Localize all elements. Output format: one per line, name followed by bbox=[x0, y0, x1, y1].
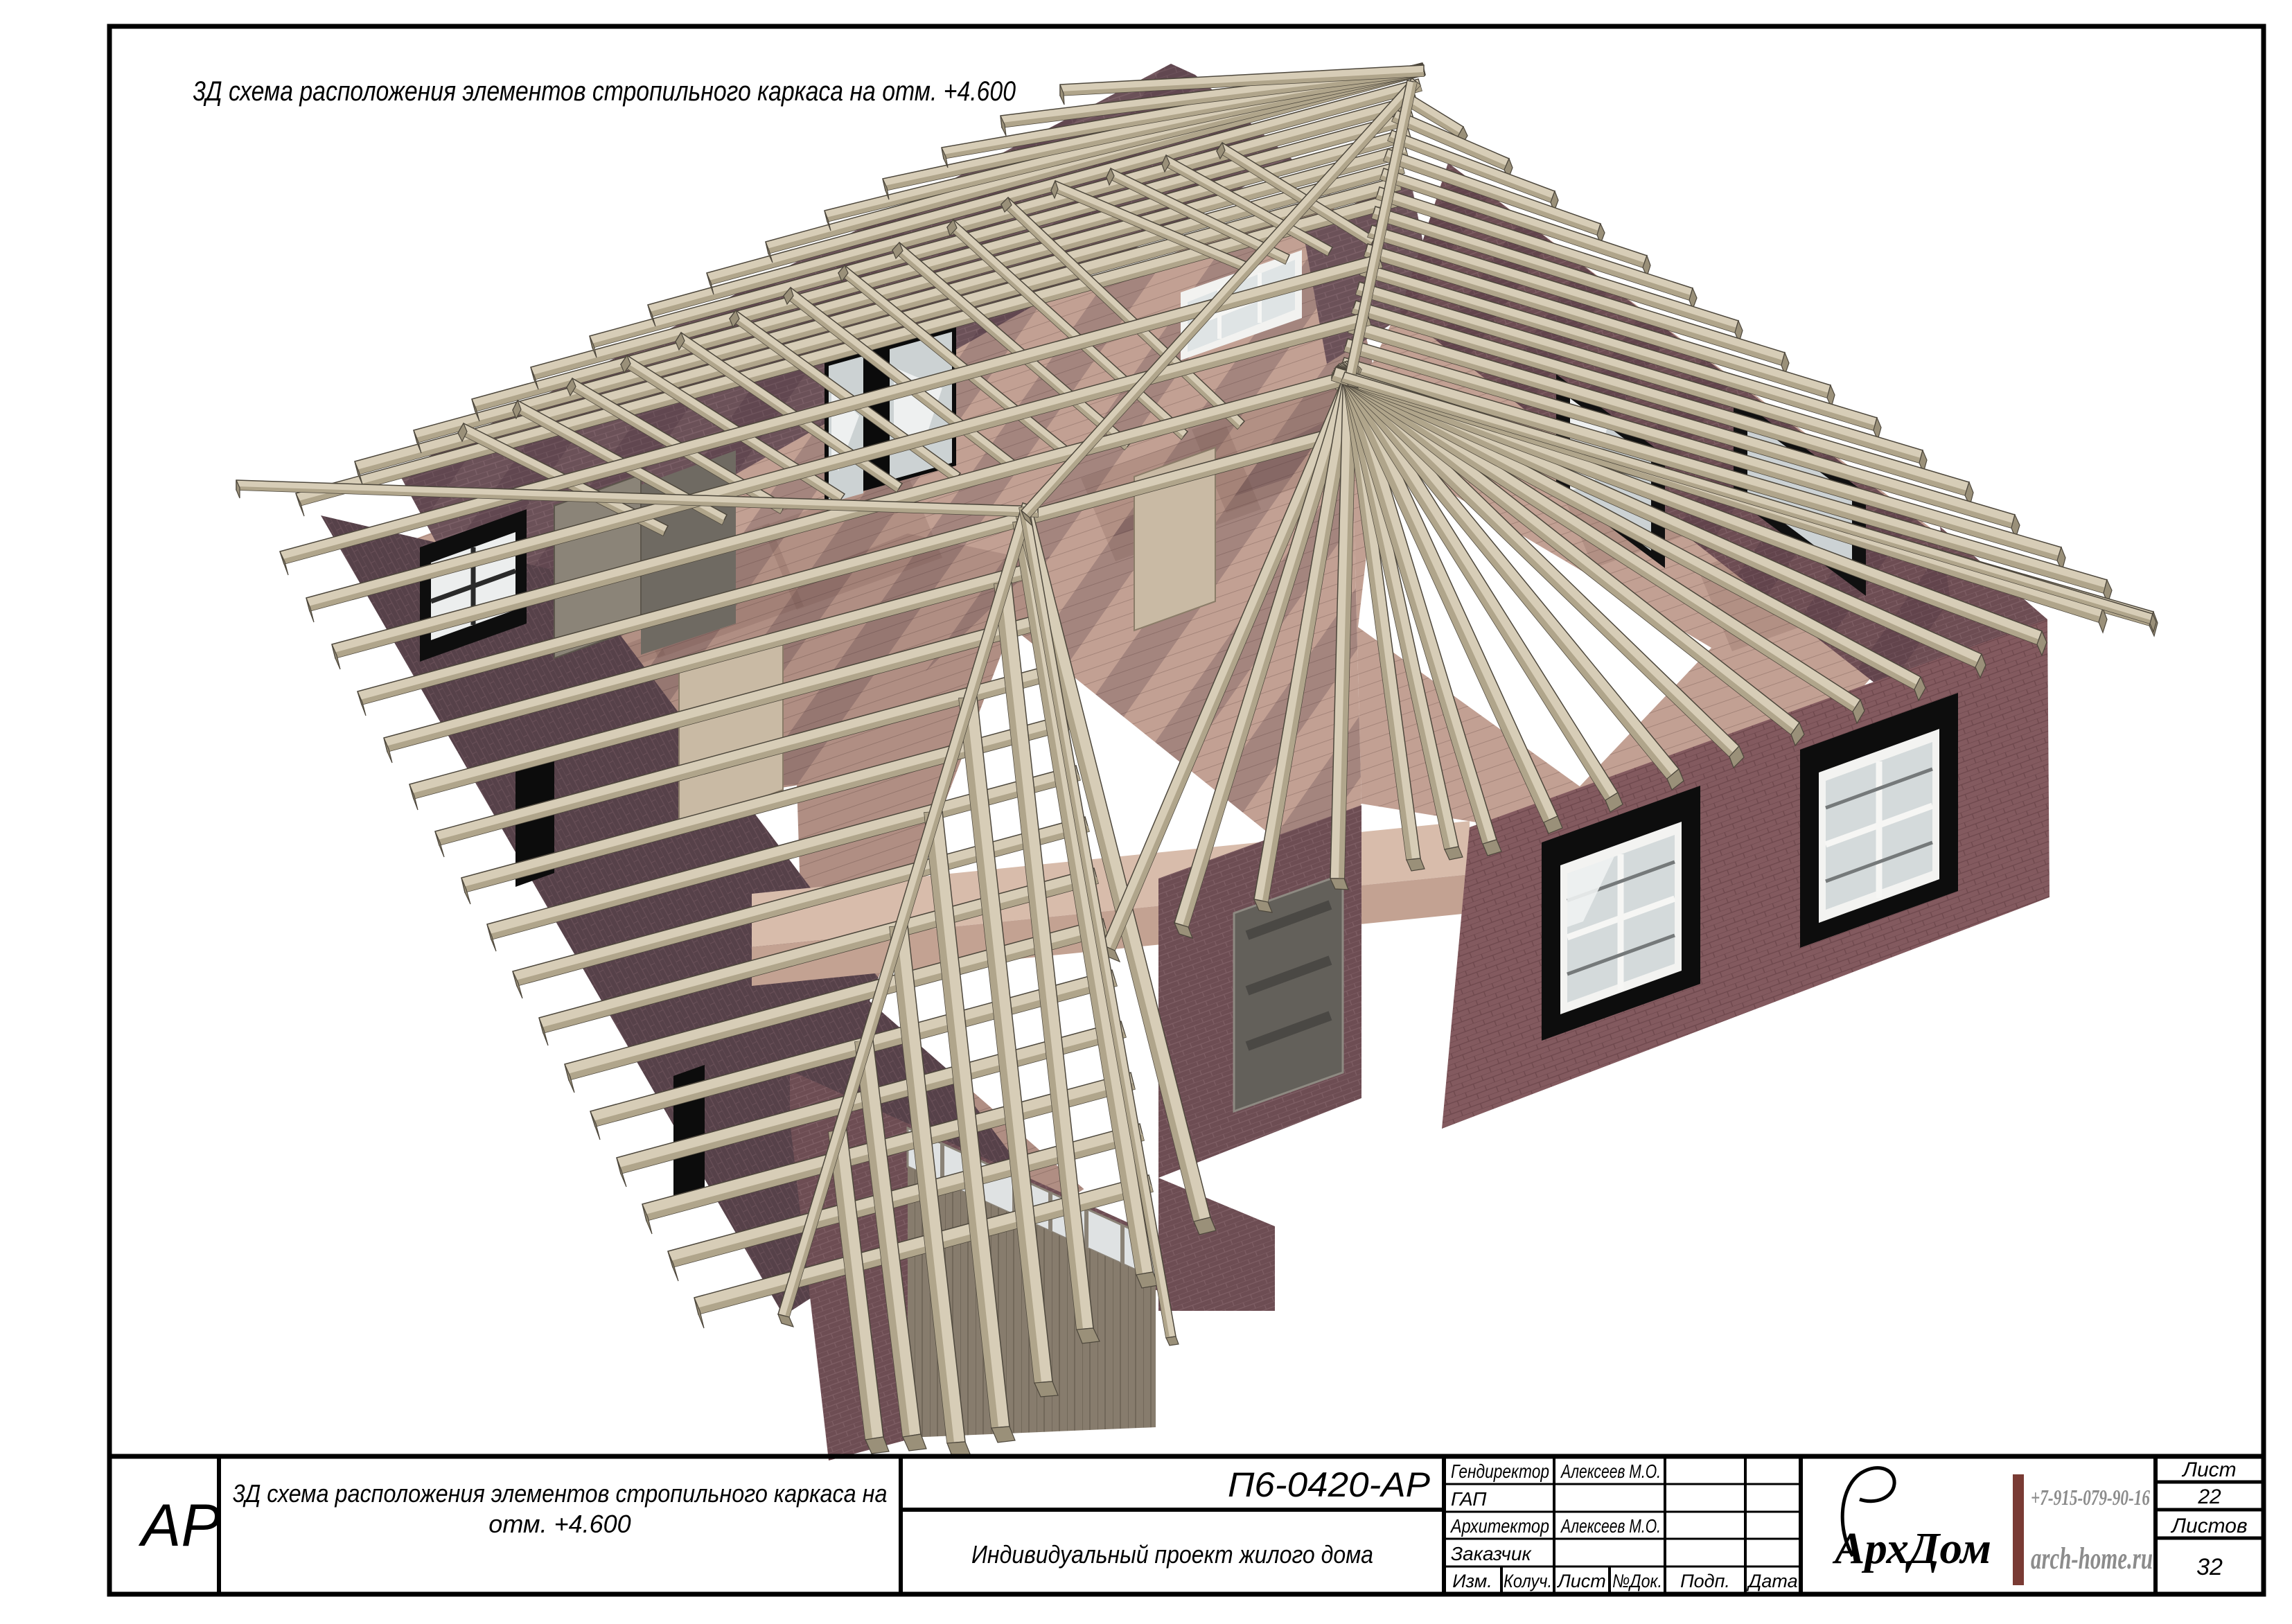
svg-text:Изм.: Изм. bbox=[1452, 1571, 1492, 1591]
svg-text:Лист: Лист bbox=[2181, 1458, 2236, 1481]
svg-text:Алексеев М.О.: Алексеев М.О. bbox=[1560, 1460, 1661, 1482]
svg-text:3Д схема расположения элементо: 3Д схема расположения элементов стропиль… bbox=[193, 76, 1016, 107]
svg-text:Заказчик: Заказчик bbox=[1451, 1543, 1532, 1564]
svg-text:Гендиректор: Гендиректор bbox=[1451, 1460, 1549, 1482]
svg-text:32: 32 bbox=[2196, 1554, 2223, 1580]
svg-text:22: 22 bbox=[2197, 1485, 2221, 1508]
svg-text:Индивидуальный проект жилого д: Индивидуальный проект жилого дома bbox=[971, 1540, 1373, 1569]
svg-text:Лист: Лист bbox=[1556, 1571, 1606, 1591]
svg-text:Дата: Дата bbox=[1746, 1571, 1797, 1591]
svg-text:Архитектор: Архитектор bbox=[1449, 1515, 1549, 1537]
svg-text:№Док.: №Док. bbox=[1612, 1571, 1662, 1591]
svg-text:Листов: Листов bbox=[2170, 1515, 2247, 1537]
svg-text:Колуч.: Колуч. bbox=[1504, 1571, 1552, 1591]
svg-text:arch-home.ru: arch-home.ru bbox=[2031, 1542, 2153, 1576]
svg-text:ГАП: ГАП bbox=[1451, 1488, 1487, 1510]
svg-text:Подп.: Подп. bbox=[1680, 1571, 1730, 1591]
svg-text:+7-915-079-90-16: +7-915-079-90-16 bbox=[2031, 1485, 2150, 1510]
svg-text:3Д схема расположения элементо: 3Д схема расположения элементов стропиль… bbox=[233, 1479, 888, 1508]
svg-text:П6-0420-АР: П6-0420-АР bbox=[1228, 1465, 1431, 1504]
svg-text:АР: АР bbox=[138, 1492, 221, 1559]
svg-text:АрхДом: АрхДом bbox=[1832, 1524, 1991, 1573]
svg-text:Алексеев М.О.: Алексеев М.О. bbox=[1560, 1515, 1661, 1537]
svg-text:отм. +4.600: отм. +4.600 bbox=[488, 1510, 631, 1538]
